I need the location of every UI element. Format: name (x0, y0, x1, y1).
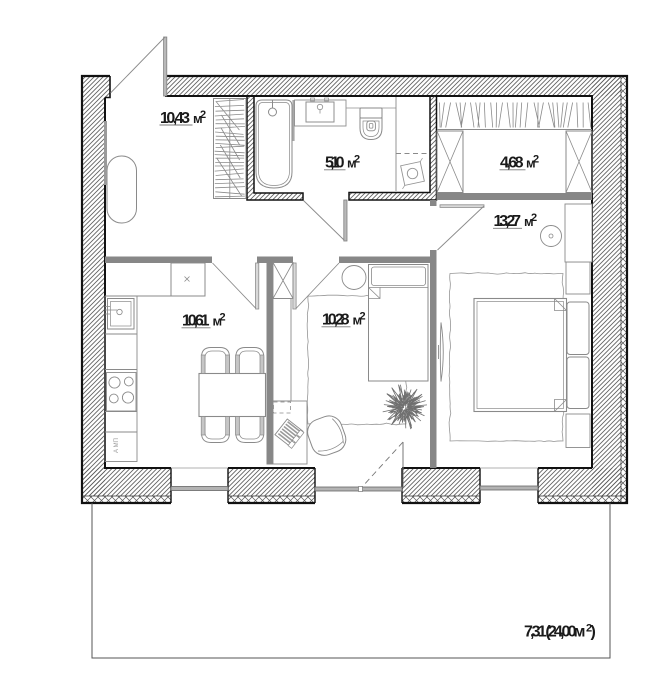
svg-text:): ) (591, 624, 596, 641)
svg-text:2: 2 (354, 154, 360, 166)
svg-text:4,68: 4,68 (500, 155, 524, 172)
svg-text:2: 2 (531, 212, 537, 224)
svg-text:7,31 (24,00м: 7,31 (24,00м (524, 624, 586, 641)
svg-text:10,28: 10,28 (322, 312, 350, 329)
svg-text:2: 2 (220, 312, 226, 324)
svg-text:2: 2 (200, 109, 206, 121)
svg-text:2: 2 (533, 154, 539, 166)
svg-text:А МП: А МП (114, 438, 120, 453)
svg-text:13,27: 13,27 (494, 213, 522, 230)
svg-text:5,10: 5,10 (325, 155, 345, 172)
svg-text:10,61: 10,61 (182, 313, 210, 330)
svg-text:10,43: 10,43 (160, 110, 190, 127)
svg-text:2: 2 (360, 311, 366, 323)
